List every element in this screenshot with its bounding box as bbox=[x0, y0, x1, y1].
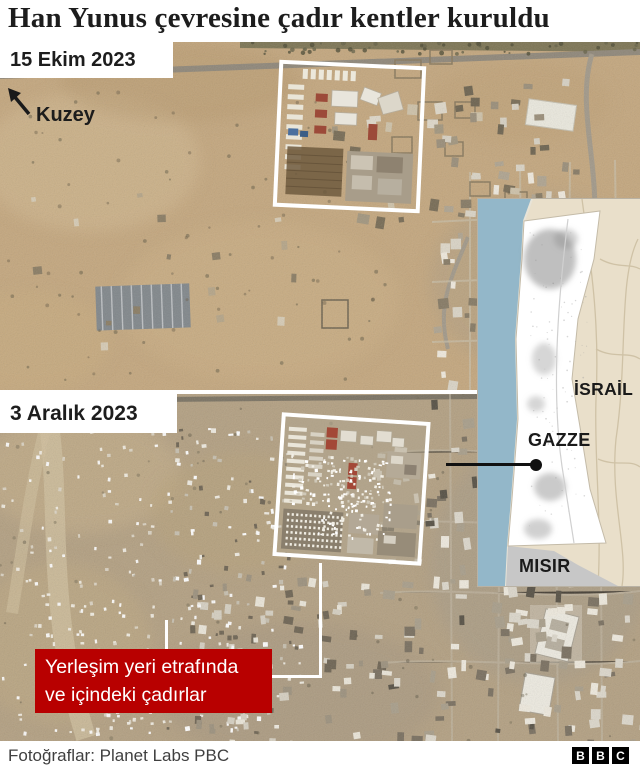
compass-label: Kuzey bbox=[36, 104, 95, 127]
leader-line bbox=[270, 675, 322, 678]
callout-box: Yerleşim yeri etrafında ve içindeki çadı… bbox=[35, 649, 272, 713]
footer: Fotoğraflar: Planet Labs PBC B B C bbox=[0, 741, 640, 771]
label-israel: İSRAİL bbox=[574, 379, 633, 400]
bbc-logo-block: B bbox=[572, 747, 589, 764]
callout-line1: Yerleşim yeri etrafında bbox=[45, 653, 272, 681]
gray-compound bbox=[345, 151, 413, 204]
compass: Kuzey bbox=[6, 86, 116, 138]
location-dot bbox=[530, 459, 542, 471]
compound-detail bbox=[277, 64, 422, 209]
leader-line bbox=[165, 620, 168, 651]
shed-row bbox=[303, 69, 356, 81]
date-label-december: 3 Aralık 2023 bbox=[0, 394, 177, 433]
date-label-october: 15 Ekim 2023 bbox=[0, 42, 173, 78]
camp-detail bbox=[277, 416, 427, 561]
blue-tank bbox=[300, 131, 308, 137]
callout-line2: ve içindeki çadırlar bbox=[45, 681, 272, 709]
highlight-frame-october bbox=[273, 60, 427, 214]
date-label-text: 15 Ekim 2023 bbox=[10, 49, 136, 72]
blue-tank bbox=[288, 128, 298, 135]
date-label-text: 3 Aralık 2023 bbox=[10, 402, 138, 426]
news-graphic: Han Yunus çevresine çadır kentler kuruld… bbox=[0, 0, 640, 771]
bbc-logo-block: B bbox=[592, 747, 609, 764]
locator-line bbox=[446, 463, 536, 466]
dirt-field bbox=[285, 146, 343, 196]
highlight-frame-december bbox=[272, 412, 430, 566]
leader-line bbox=[319, 563, 322, 677]
north-arrow-icon bbox=[6, 86, 36, 120]
bbc-logo: B B C bbox=[572, 747, 629, 764]
label-gaza: GAZZE bbox=[528, 430, 591, 451]
bbc-logo-block: C bbox=[612, 747, 629, 764]
headline: Han Yunus çevresine çadır kentler kuruld… bbox=[8, 2, 638, 42]
inset-map: İSRAİL GAZZE MISIR bbox=[478, 199, 640, 586]
photo-credit: Fotoğraflar: Planet Labs PBC bbox=[8, 746, 229, 766]
label-egypt: MISIR bbox=[519, 556, 571, 577]
warehouses bbox=[331, 86, 405, 128]
